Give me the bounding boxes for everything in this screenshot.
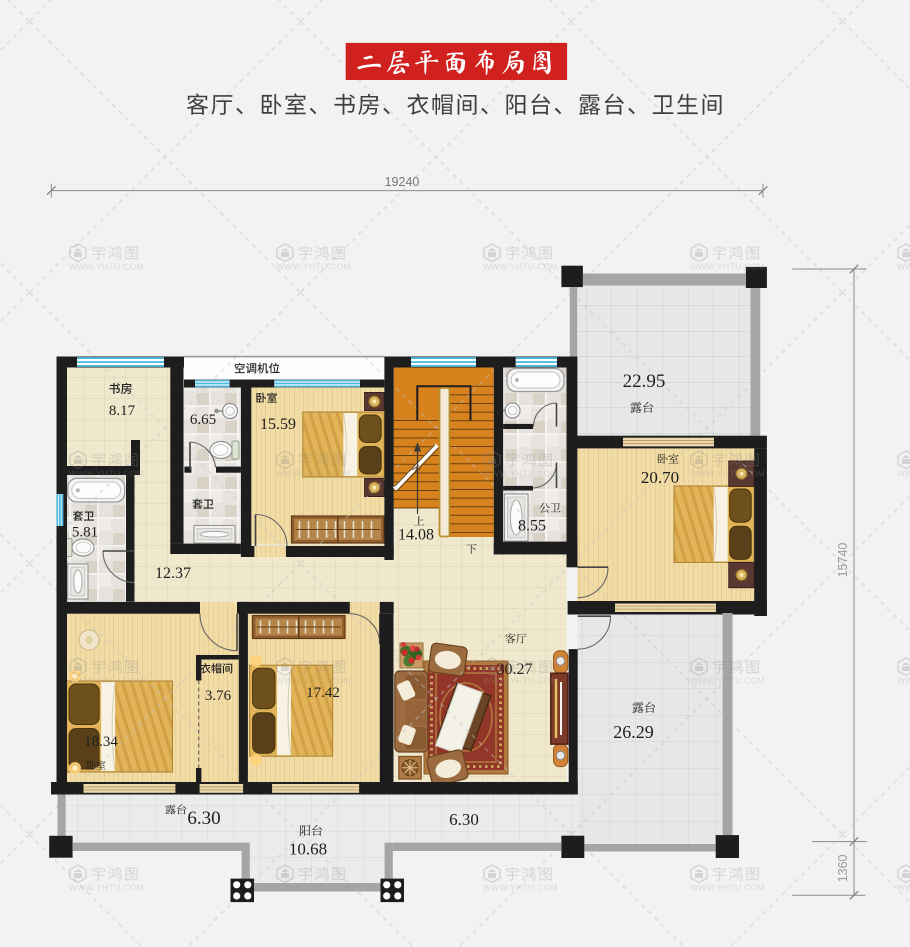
svg-text:14.08: 14.08 (398, 527, 434, 544)
svg-text:12.37: 12.37 (155, 565, 191, 582)
svg-text:26.29: 26.29 (613, 722, 654, 742)
svg-text:8.17: 8.17 (109, 403, 136, 419)
svg-text:18.34: 18.34 (84, 734, 118, 750)
svg-text:8.55: 8.55 (518, 518, 546, 535)
svg-text:1360: 1360 (836, 854, 850, 882)
svg-text:20.70: 20.70 (641, 468, 679, 487)
svg-text:19240: 19240 (385, 175, 420, 189)
svg-text:17.42: 17.42 (306, 685, 340, 701)
svg-text:6.30: 6.30 (449, 810, 479, 829)
svg-text:22.95: 22.95 (623, 371, 666, 392)
svg-text:3.76: 3.76 (205, 688, 232, 704)
svg-text:6.30: 6.30 (187, 808, 220, 829)
svg-text:15.59: 15.59 (260, 416, 296, 433)
svg-text:15740: 15740 (836, 543, 850, 578)
svg-text:10.68: 10.68 (289, 840, 327, 859)
svg-text:6.65: 6.65 (190, 412, 216, 428)
svg-text:5.81: 5.81 (72, 525, 98, 541)
